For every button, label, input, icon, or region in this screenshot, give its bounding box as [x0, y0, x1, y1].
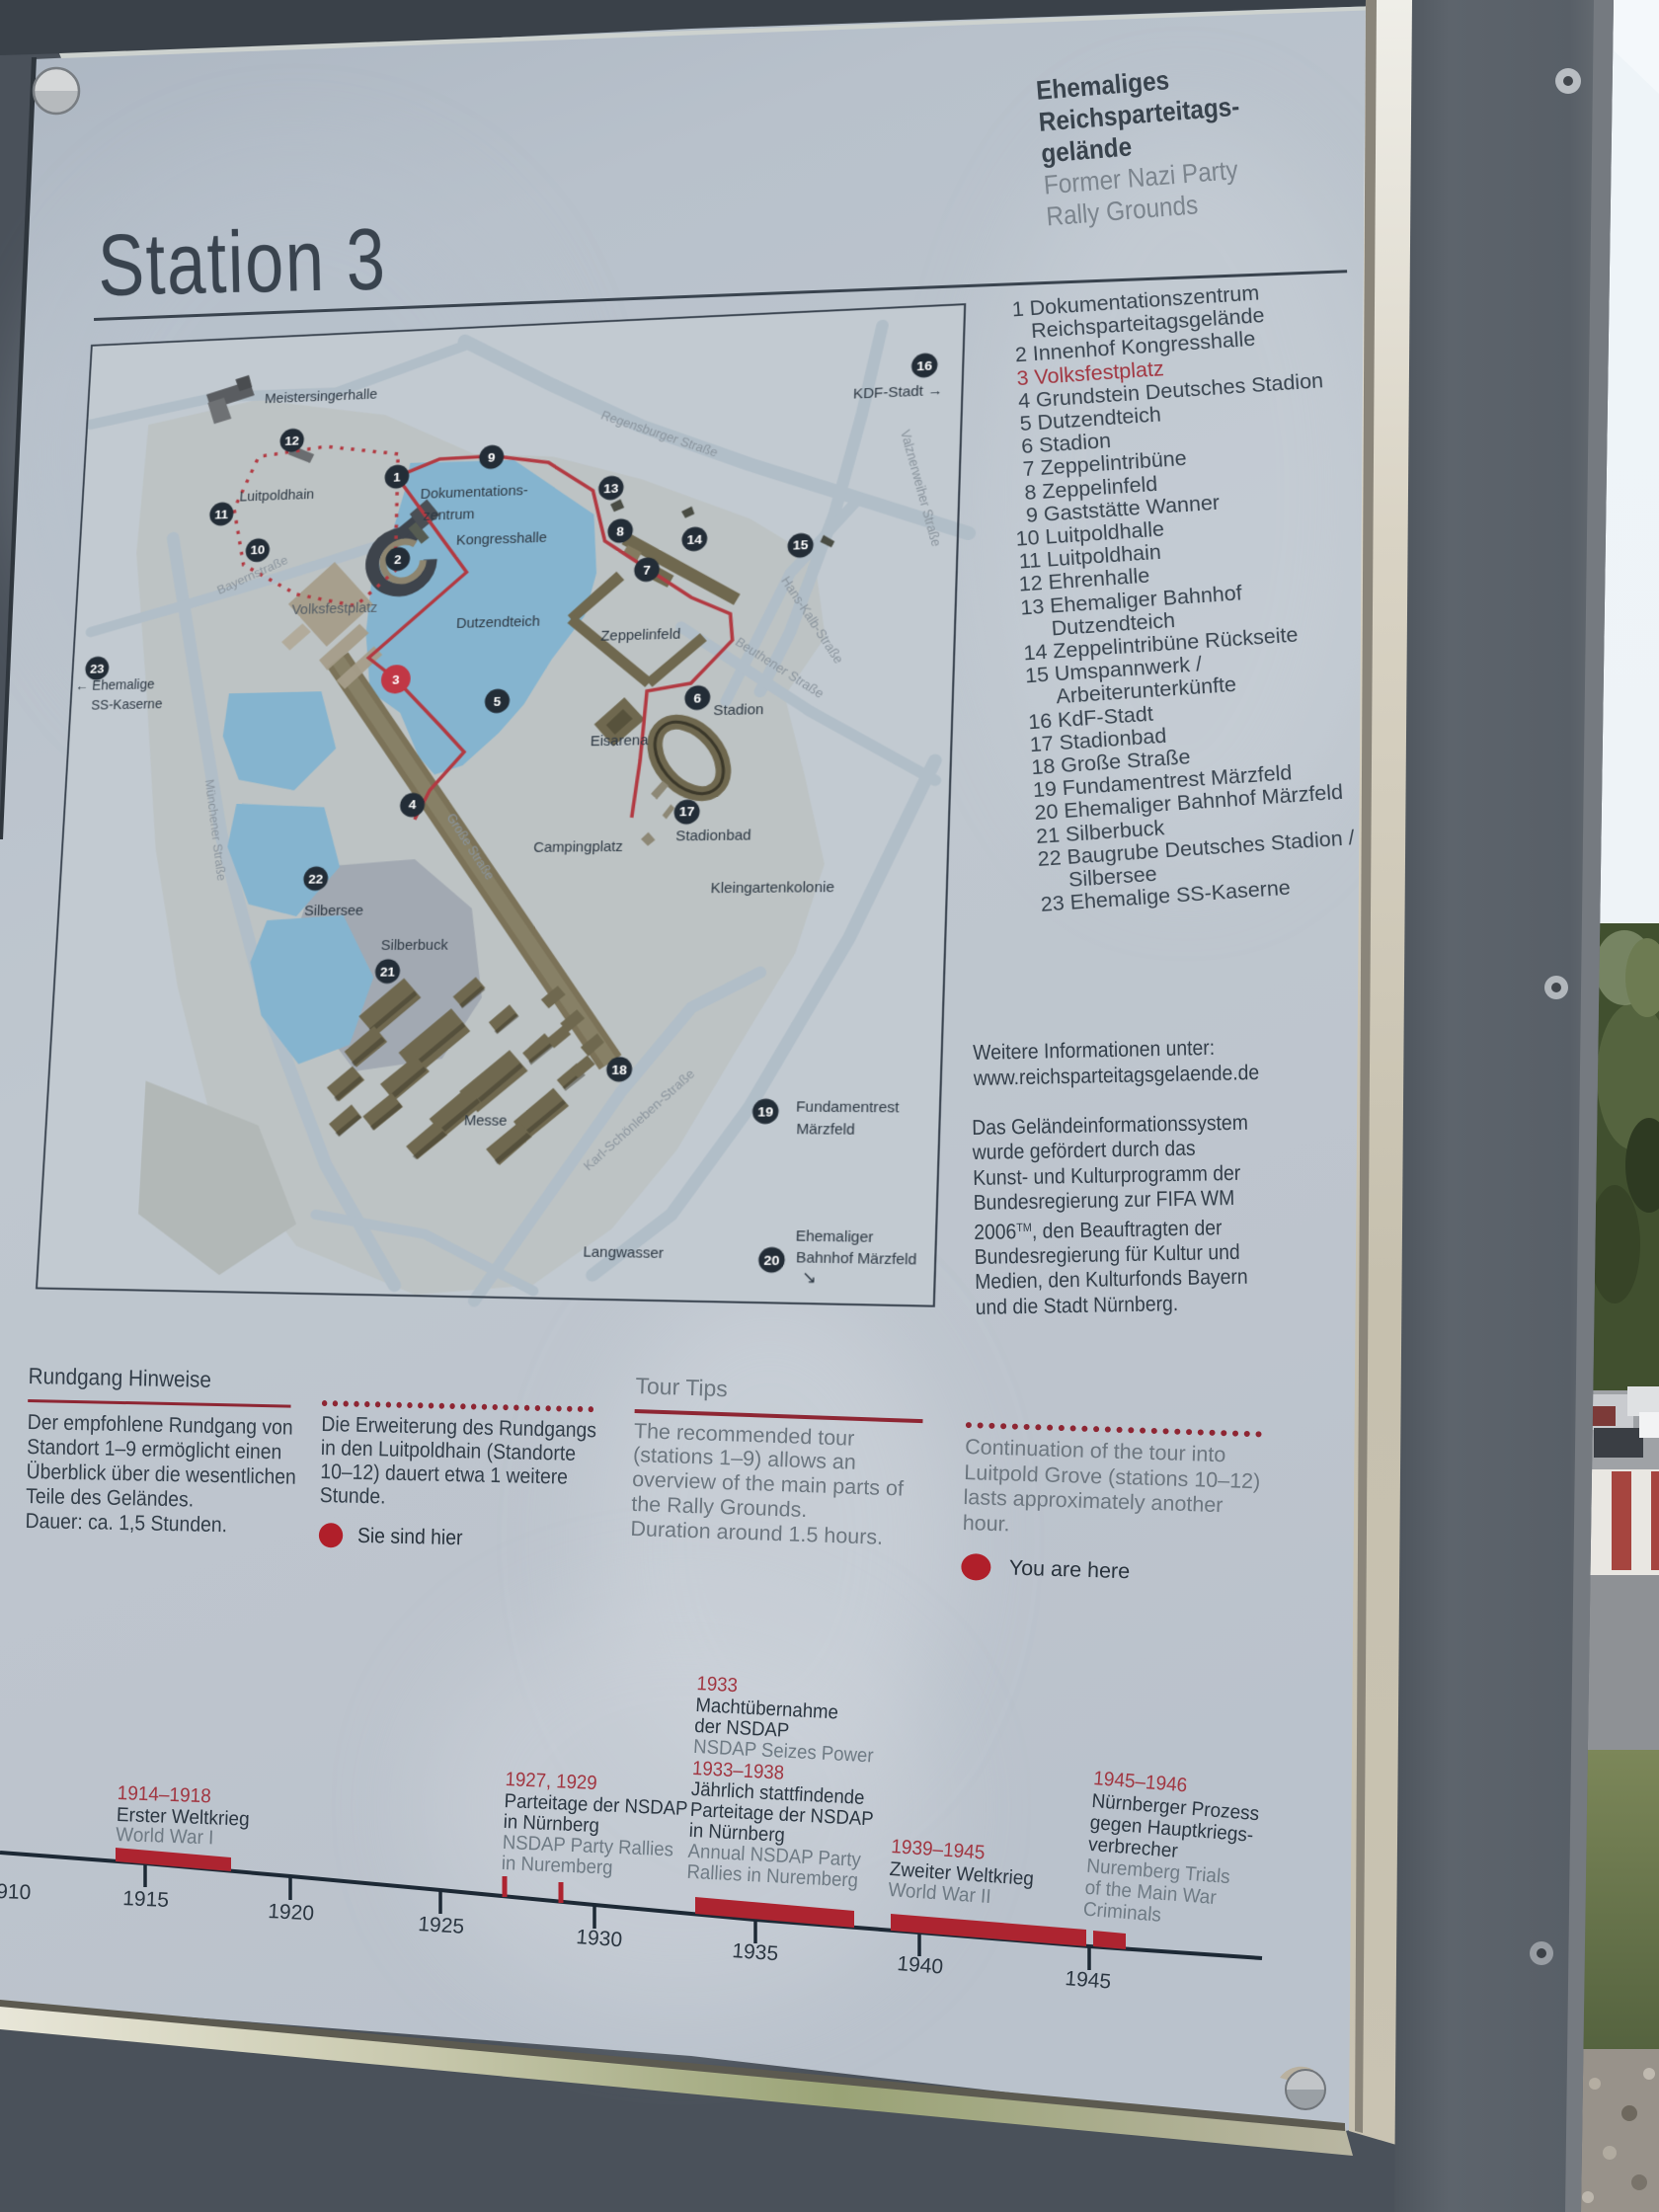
svg-text:3: 3	[392, 672, 400, 687]
svg-text:Messe: Messe	[464, 1112, 508, 1129]
svg-text:1930: 1930	[576, 1926, 623, 1951]
svg-text:↘: ↘	[801, 1269, 817, 1288]
svg-text:Zeppelinfeld: Zeppelinfeld	[600, 626, 680, 644]
svg-text:5: 5	[493, 694, 501, 709]
svg-text:Bahnhof Märzfeld: Bahnhof Märzfeld	[796, 1249, 917, 1268]
svg-text:1915: 1915	[122, 1887, 170, 1912]
svg-text:1933: 1933	[696, 1673, 738, 1697]
svg-text:12: 12	[284, 434, 299, 448]
svg-text:9: 9	[488, 450, 496, 465]
svg-text:Luitpoldhain: Luitpoldhain	[239, 487, 314, 505]
svg-text:2: 2	[394, 552, 402, 567]
svg-text:Campingplatz: Campingplatz	[533, 838, 624, 855]
svg-text:Kongresshalle: Kongresshalle	[456, 529, 548, 548]
svg-text:16: 16	[916, 358, 932, 374]
svg-text:1945: 1945	[1065, 1967, 1112, 1994]
svg-text:14: 14	[686, 532, 702, 547]
svg-text:19: 19	[757, 1104, 773, 1120]
svg-text:21: 21	[380, 965, 396, 980]
svg-text:Silbersee: Silbersee	[304, 903, 364, 918]
svg-text:1: 1	[393, 470, 401, 485]
svg-text:20: 20	[763, 1253, 780, 1269]
svg-text:4: 4	[408, 797, 416, 812]
svg-text:8: 8	[616, 524, 624, 539]
svg-text:Langwasser: Langwasser	[583, 1243, 665, 1261]
svg-text:18: 18	[611, 1063, 627, 1077]
svg-text:7: 7	[643, 563, 651, 578]
svg-text:Stadionbad: Stadionbad	[675, 827, 751, 843]
svg-text:Stadion: Stadion	[713, 701, 764, 718]
svg-text:World War I: World War I	[116, 1824, 214, 1850]
svg-text:Volksfestplatz: Volksfestplatz	[291, 599, 378, 617]
svg-text:in Nuremberg: in Nuremberg	[501, 1853, 612, 1879]
svg-text:13: 13	[603, 481, 619, 496]
svg-text:Kleingartenkolonie: Kleingartenkolonie	[710, 879, 834, 896]
svg-text:Märzfeld: Märzfeld	[796, 1121, 855, 1138]
svg-text:Fundamentrest: Fundamentrest	[796, 1098, 900, 1115]
svg-text:Criminals: Criminals	[1082, 1898, 1162, 1927]
svg-text:1920: 1920	[268, 1900, 315, 1925]
svg-text:Dutzendteich: Dutzendteich	[456, 613, 541, 631]
svg-text:10: 10	[250, 543, 265, 558]
svg-text:17: 17	[679, 804, 695, 819]
svg-text:6: 6	[693, 691, 701, 706]
svg-text:zentrum: zentrum	[423, 507, 475, 523]
svg-text:15: 15	[793, 537, 809, 552]
svg-text:← Ehemalige: ← Ehemalige	[75, 676, 155, 693]
svg-text:Eisarena: Eisarena	[591, 732, 650, 749]
svg-text:23: 23	[90, 662, 105, 676]
svg-text:11: 11	[214, 508, 229, 522]
svg-text:Ehemaliger: Ehemaliger	[795, 1227, 874, 1245]
svg-text:Silberbuck: Silberbuck	[380, 937, 448, 953]
svg-text:22: 22	[308, 872, 324, 887]
svg-text:910: 910	[0, 1880, 32, 1904]
svg-text:SS-Kaserne: SS-Kaserne	[91, 696, 163, 713]
svg-text:1935: 1935	[732, 1939, 779, 1965]
svg-text:1940: 1940	[897, 1952, 944, 1979]
svg-text:1925: 1925	[418, 1913, 465, 1938]
